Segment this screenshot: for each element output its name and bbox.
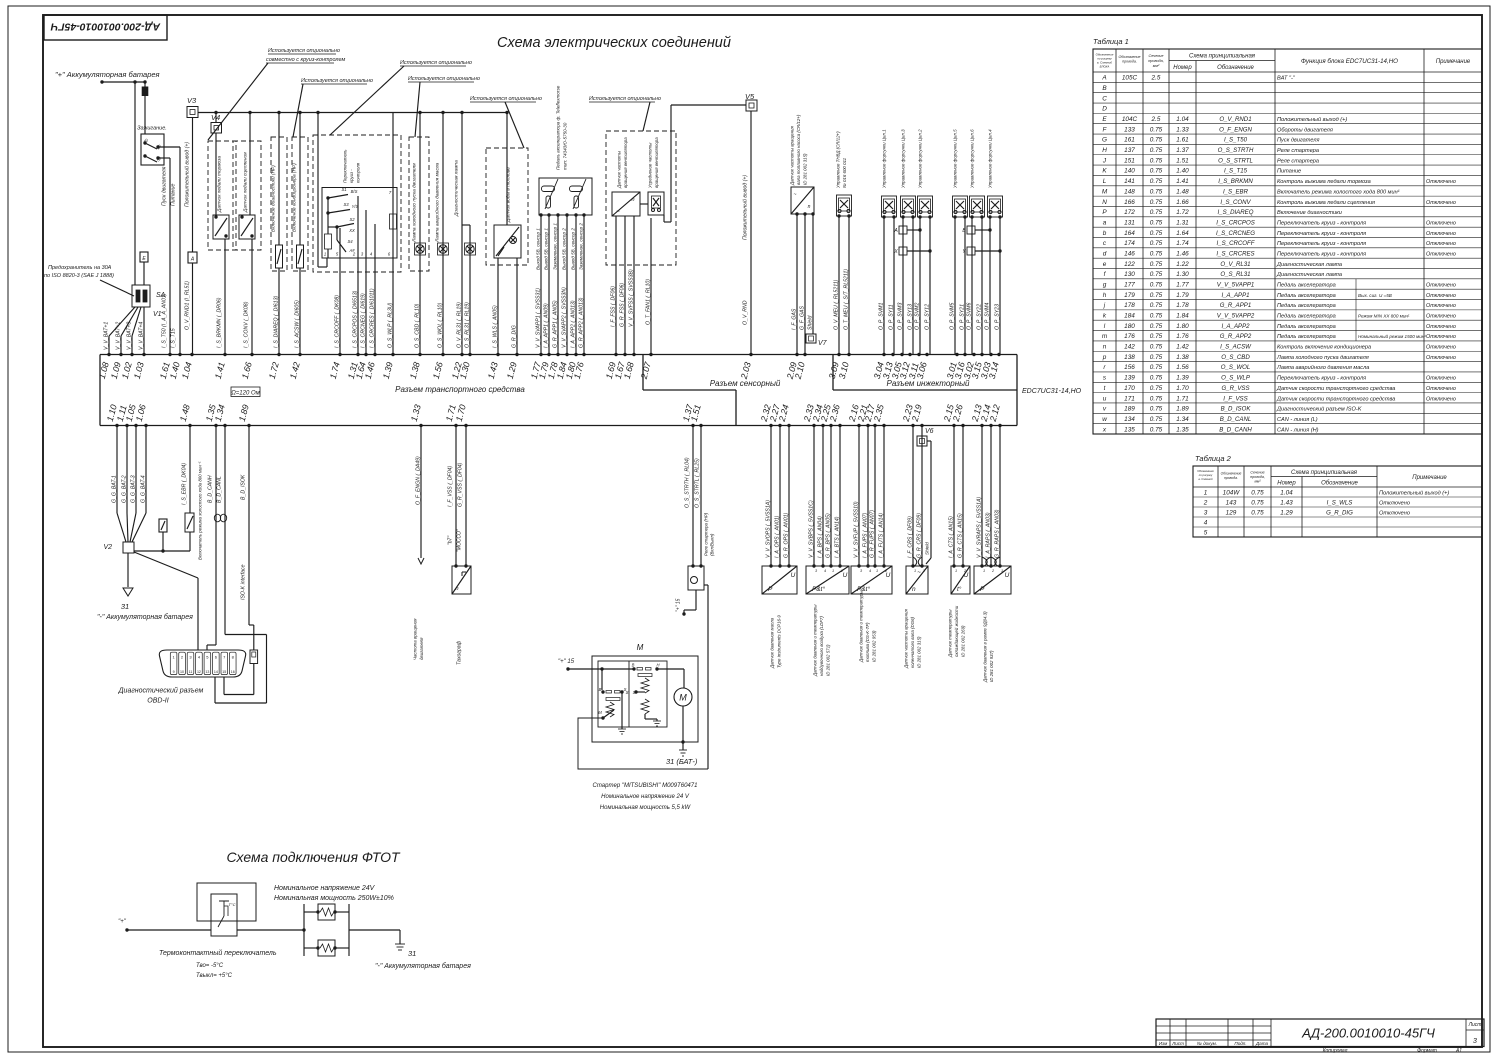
svg-text:0.75: 0.75: [1150, 209, 1163, 216]
svg-text:Управление форсунки Цил.1: Управление форсунки Цил.1: [881, 129, 886, 188]
svg-text:I_A_OPS (_AN01): I_A_OPS (_AN01): [774, 515, 780, 558]
svg-text:коленчатого вала (DG6): коленчатого вала (DG6): [910, 616, 915, 668]
svg-text:178: 178: [1124, 302, 1135, 309]
svg-text:Датчик частоты вращения: Датчик частоты вращения: [903, 609, 908, 669]
svg-text:0.75: 0.75: [1150, 168, 1163, 175]
svg-text:I_S_CRCNEG (_DI619): I_S_CRCNEG (_DI619): [360, 293, 366, 348]
svg-text:Датчик давления и температуры: Датчик давления и температуры: [858, 590, 863, 663]
svg-text:Включение кондиционера (НР): Включение кондиционера (НР): [291, 163, 297, 232]
svg-text:Вых. сиг. U =5В: Вых. сиг. U =5В: [1358, 293, 1392, 298]
svg-text:m: m: [1102, 333, 1108, 340]
svg-text:L: L: [1103, 178, 1107, 185]
svg-text:143: 143: [1226, 500, 1237, 507]
svg-text:2.5: 2.5: [1151, 116, 1161, 123]
svg-text:Управление форсунки Цил.5: Управление форсунки Цил.5: [952, 129, 957, 188]
svg-text:O_S_RL31 (_RL19): O_S_RL31 (_RL19): [464, 302, 470, 348]
svg-text:ISO-K interface: ISO-K interface: [240, 564, 246, 600]
svg-text:141: 141: [1124, 178, 1135, 185]
svg-text:0.75: 0.75: [1150, 230, 1163, 237]
svg-text:1.29: 1.29: [1280, 510, 1293, 517]
svg-text:V_V_SVFUP (_5VSS10): V_V_SVFUP (_5VSS10): [853, 501, 859, 558]
svg-text:Схема принципиальная: Схема принципиальная: [1291, 470, 1358, 476]
svg-text:N: N: [1102, 199, 1107, 206]
svg-text:Номер: Номер: [1277, 481, 1296, 487]
svg-text:O_T_MEU (_S/T_RL5211): O_T_MEU (_S/T_RL5211): [843, 269, 849, 330]
svg-text:1.74: 1.74: [1176, 240, 1189, 247]
svg-text:V_V_SVAPP1 (_SVSS31): V_V_SVAPP1 (_SVSS31): [535, 288, 541, 348]
svg-text:O_S_WLP (_RL3U): O_S_WLP (_RL3U): [387, 302, 393, 348]
svg-text:O_P_SY12: O_P_SY12: [924, 304, 930, 330]
svg-text:0.75: 0.75: [1150, 199, 1163, 206]
svg-text:d: d: [1103, 250, 1107, 257]
svg-text:провода.: провода.: [1224, 476, 1238, 480]
svg-text:Датчик педали тормоза: Датчик педали тормоза: [216, 156, 222, 213]
svg-text:I_S_CRCRES: I_S_CRCRES: [1216, 250, 1254, 257]
svg-text:146: 146: [1124, 250, 1135, 257]
svg-text:1.70: 1.70: [1176, 385, 1189, 392]
svg-text:161: 161: [1124, 137, 1135, 144]
svg-text:10: 10: [180, 670, 184, 674]
svg-text:совместно с круиз-контролем: совместно с круиз-контролем: [266, 57, 346, 63]
svg-text:1.78: 1.78: [1176, 302, 1189, 309]
svg-text:O_P_SVM2: O_P_SVM2: [914, 302, 920, 330]
svg-text:h: h: [1103, 292, 1107, 299]
svg-text:~: ~: [794, 192, 797, 198]
svg-text:Отключено: Отключено: [1426, 220, 1456, 226]
svg-text:1.72: 1.72: [1176, 209, 1189, 216]
svg-text:G_R_VSS (_DF04): G_R_VSS (_DF04): [457, 462, 463, 507]
svg-text:I_A_FUPS (_AN07): I_A_FUPS (_AN07): [862, 512, 868, 558]
svg-text:ID 281 002 269): ID 281 002 269): [960, 625, 965, 657]
svg-text:Отключено: Отключено: [1426, 231, 1456, 237]
svg-text:Зажигание.: Зажигание.: [137, 126, 167, 132]
svg-text:Схема электрических соединений: Схема электрических соединений: [497, 35, 731, 51]
svg-text:1.76: 1.76: [1176, 333, 1189, 340]
svg-text:Отключено: Отключено: [1426, 283, 1456, 289]
svg-text:Отключено: Отключено: [1426, 251, 1456, 257]
svg-text:O_S_STRTL: O_S_STRTL: [1218, 157, 1253, 164]
svg-text:O_S_STRTH (_RL04): O_S_STRTH (_RL04): [684, 457, 690, 508]
svg-text:A: A: [893, 228, 898, 234]
svg-text:135: 135: [1124, 426, 1135, 433]
svg-text:Диагностическая лампа: Диагностическая лампа: [1276, 272, 1342, 278]
svg-text:вала топливного насоса (CR/12+: вала топливного насоса (CR/12+): [796, 114, 801, 185]
svg-text:V7: V7: [818, 340, 828, 347]
svg-text:S3: S3: [343, 202, 349, 207]
svg-text:0.75: 0.75: [1150, 375, 1163, 382]
svg-text:3: 3: [1204, 510, 1208, 517]
svg-text:Примечание: Примечание: [1436, 59, 1471, 65]
svg-text:G_R_BPS (_AN05): G_R_BPS (_AN05): [825, 513, 831, 558]
svg-text:Контроль выжима педали сцеплен: Контроль выжима педали сцепления: [1277, 200, 1375, 206]
svg-text:I_F_FSS (_DF06): I_F_FSS (_DF06): [610, 286, 616, 327]
svg-text:O_P_SVM1: O_P_SVM1: [878, 302, 884, 330]
svg-text:Используется опционально: Используется опционально: [268, 48, 340, 54]
svg-text:С: С: [1102, 95, 1107, 102]
svg-text:Т°С: Т°С: [229, 902, 236, 907]
svg-text:G_R_FSS (_DF06): G_R_FSS (_DF06): [619, 283, 625, 327]
svg-text:Разъем транспортного средства: Разъем транспортного средства: [395, 385, 525, 394]
svg-text:0.75: 0.75: [1251, 500, 1264, 507]
svg-text:0.75: 0.75: [1251, 510, 1264, 517]
svg-text:V2: V2: [103, 544, 112, 551]
svg-text:1.56: 1.56: [1176, 364, 1189, 371]
svg-text:V6: V6: [925, 428, 934, 435]
svg-text:0.75: 0.75: [1150, 313, 1163, 320]
svg-text:1: 1: [914, 569, 916, 573]
svg-text:топлива (DS-K-TF): топлива (DS-K-TF): [865, 622, 870, 662]
svg-text:1.39: 1.39: [1176, 375, 1189, 382]
svg-text:V_V_5VAPP2: V_V_5VAPP2: [1217, 313, 1255, 320]
svg-text:2.5: 2.5: [1151, 75, 1161, 82]
svg-text:G_R_DIG: G_R_DIG: [1326, 510, 1353, 517]
svg-text:Shield: Shield: [924, 542, 929, 555]
svg-text:p: p: [1102, 354, 1107, 361]
svg-text:1.40: 1.40: [1176, 168, 1189, 175]
svg-text:1.66: 1.66: [1176, 199, 1189, 206]
svg-text:Номинальное напряжение 24 V: Номинальное напряжение 24 V: [601, 794, 690, 800]
svg-text:V_V_SVBPS (_5VSS1C): V_V_SVBPS (_5VSS1C): [808, 500, 814, 558]
svg-text:131: 131: [1124, 219, 1135, 226]
svg-text:Сечение: Сечение: [1148, 54, 1163, 58]
svg-text:174: 174: [1124, 240, 1135, 247]
svg-text:1.30: 1.30: [1176, 271, 1189, 278]
svg-text:O_S_WOL (_RL10): O_S_WOL (_RL10): [437, 303, 443, 348]
svg-text:В: В: [1102, 85, 1107, 92]
svg-text:провода.: провода.: [1122, 60, 1137, 64]
svg-text:171: 171: [1124, 395, 1135, 402]
svg-text:1.34: 1.34: [1176, 416, 1189, 423]
svg-text:BAT "-": BAT "-": [1277, 76, 1296, 82]
svg-text:I_S_T15: I_S_T15: [1224, 168, 1248, 175]
svg-text:"+" 15: "+" 15: [558, 659, 575, 665]
svg-text:Термоконтактный переключатель: Термоконтактный переключатель: [159, 949, 277, 957]
svg-text:O_V_RL31: O_V_RL31: [1220, 261, 1250, 268]
svg-text:1.42: 1.42: [1176, 344, 1189, 351]
svg-text:(Вкл/Выкл): (Вкл/Выкл): [709, 533, 714, 556]
svg-text:Обороты двигателя: Обороты двигателя: [1277, 127, 1333, 133]
svg-text:Функция блока EDC7UC31-14,НО: Функция блока EDC7UC31-14,НО: [1301, 58, 1398, 65]
svg-text:Датчик скорости транспортного: Датчик скорости транспортного средства: [1276, 396, 1395, 402]
svg-text:Отключено: Отключено: [1426, 345, 1456, 351]
svg-text:Диагностическая лампа: Диагностическая лампа: [453, 160, 459, 217]
svg-text:I_S_DIAREQ (_DI613): I_S_DIAREQ (_DI613): [273, 296, 279, 348]
svg-text:"b7": "b7": [447, 536, 453, 545]
svg-text:Лист: Лист: [1468, 1022, 1482, 1028]
svg-text:G_R_APP1 (_AN05): G_R_APP1 (_AN05): [552, 300, 558, 348]
svg-text:31 (БАТ-): 31 (БАТ-): [666, 757, 698, 766]
svg-text:Отключено: Отключено: [1426, 355, 1456, 361]
svg-text:Стартер "MITSUBISHI" М009Т60: Стартер "MITSUBISHI" М009Т60471: [593, 783, 698, 789]
svg-text:1.51: 1.51: [1176, 157, 1189, 164]
svg-text:G_R_VSS: G_R_VSS: [1221, 385, 1249, 392]
svg-text:Переключатель круиз - контроля: Переключатель круиз - контроля: [1277, 220, 1366, 226]
svg-text:n: n: [631, 197, 634, 203]
svg-text:g: g: [1103, 282, 1107, 289]
svg-text:139: 139: [1124, 375, 1135, 382]
svg-text:Пуск двигателя: Пуск двигателя: [161, 166, 167, 206]
svg-text:Лампа аварийного давления масл: Лампа аварийного давления масла: [1276, 364, 1369, 371]
svg-text:контроля: контроля: [355, 162, 360, 183]
svg-text:G: G: [1102, 137, 1107, 144]
svg-text:O_P_SY22: O_P_SY22: [976, 304, 982, 330]
svg-text:0.75: 0.75: [1150, 354, 1163, 361]
svg-text:Контроль включения кондиционер: Контроль включения кондиционера: [1277, 345, 1371, 351]
svg-text:O_V_RL31 (_RL19): O_V_RL31 (_RL19): [456, 302, 462, 348]
svg-text:SA: SA: [156, 292, 166, 299]
svg-text:Лампа аварийного давления масл: Лампа аварийного давления масла: [433, 162, 440, 243]
svg-text:Номинальное напряжение 24V: Номинальное напряжение 24V: [274, 885, 376, 892]
svg-text:K: K: [1102, 168, 1107, 175]
svg-text:Питание: Питание: [170, 183, 176, 206]
svg-text:104C: 104C: [1122, 116, 1138, 123]
svg-text:I_A_BTS (_AN14): I_A_BTS (_AN14): [834, 516, 840, 558]
svg-text:O_P_SY21: O_P_SY21: [959, 304, 965, 330]
svg-text:Переключатель круиз - контроля: Переключатель круиз - контроля: [1277, 251, 1366, 257]
svg-text:I_S_CRCPOS (_DI6513): I_S_CRCPOS (_DI6513): [352, 290, 358, 348]
svg-text:Копировал: Копировал: [1323, 1048, 1348, 1054]
svg-text:I_S_CRCOFF (_DK08): I_S_CRCOFF (_DK08): [334, 295, 340, 348]
svg-text:179: 179: [1124, 292, 1135, 299]
svg-text:1: 1: [1204, 490, 1208, 497]
svg-text:Дата: Дата: [1255, 1041, 1269, 1046]
svg-text:вращения вентилятора: вращения вентилятора: [654, 137, 659, 188]
svg-text:Педаль акселератора: Педаль акселератора: [1277, 314, 1336, 320]
svg-text:I_S_ACSW: I_S_ACSW: [1220, 344, 1252, 351]
svg-text:133: 133: [1124, 126, 1135, 133]
svg-text:Номинальная мощность 5,5 kW: Номинальная мощность 5,5 kW: [600, 805, 692, 811]
svg-text:Лист: Лист: [1171, 1041, 1184, 1046]
svg-text:O_P_SY11: O_P_SY11: [888, 304, 894, 330]
svg-text:M: M: [1102, 188, 1108, 195]
svg-text:Отключено: Отключено: [1426, 376, 1456, 382]
svg-text:a: a: [1103, 219, 1107, 226]
svg-text:D: D: [1102, 106, 1107, 113]
svg-text:I_S_CRCOFF: I_S_CRCOFF: [1217, 240, 1256, 247]
svg-text:Управление форсунки Цил.6: Управление форсунки Цил.6: [969, 129, 974, 188]
svg-text:156: 156: [1124, 364, 1135, 371]
svg-text:G_R_CRS (_DF09): G_R_CRS (_DF09): [916, 513, 922, 558]
svg-text:EDC7UC31-14,НО: EDC7UC31-14,НО: [1022, 388, 1082, 395]
svg-text:0.75: 0.75: [1150, 292, 1163, 299]
svg-text:V_V_5VAPP1: V_V_5VAPP1: [1217, 282, 1255, 289]
svg-text:0.75: 0.75: [1150, 147, 1163, 154]
svg-text:G_R_OPS (_AN01): G_R_OPS (_AN01): [783, 512, 789, 558]
svg-text:Пуск двигателя: Пуск двигателя: [1277, 138, 1320, 144]
svg-text:Отключено: Отключено: [1426, 179, 1456, 185]
svg-text:4: 4: [1204, 520, 1208, 527]
svg-text:G_R_CTS (_AN15): G_R_CTS (_AN15): [957, 513, 963, 558]
svg-text:Отключено: Отключено: [1426, 324, 1456, 330]
svg-text:Частота вращения: Частота вращения: [412, 618, 417, 660]
svg-text:1.46: 1.46: [1176, 250, 1189, 257]
svg-text:B_D_ISOK: B_D_ISOK: [1221, 406, 1252, 413]
svg-text:G_G_BAT-2: G_G_BAT-2: [121, 475, 127, 503]
svg-text:ID 281 002 571): ID 281 002 571): [825, 644, 830, 676]
svg-text:"+" 15: "+" 15: [675, 598, 681, 612]
svg-text:Заземление, сенсор 1: Заземление, сенсор 1: [552, 223, 557, 270]
svg-text:V_V_SVAPP2 (_SVSS3N): V_V_SVAPP2 (_SVSS3N): [561, 287, 567, 348]
svg-text:двигателя: двигателя: [419, 637, 424, 660]
svg-text:1.48: 1.48: [1176, 188, 1189, 195]
svg-text:Датчик воды в топливе: Датчик воды в топливе: [505, 167, 511, 223]
svg-text:O_V_RND: O_V_RND: [742, 300, 748, 325]
svg-text:1: 1: [955, 569, 957, 573]
svg-text:O_S_RL31: O_S_RL31: [1220, 271, 1250, 278]
svg-text:V1: V1: [153, 311, 162, 318]
svg-text:I_S_ACSW (_DI605): I_S_ACSW (_DI605): [294, 300, 300, 348]
svg-text:134: 134: [1124, 416, 1135, 423]
svg-text:Вывод 5В, сенсор 2: Вывод 5В, сенсор 2: [570, 228, 575, 270]
svg-text:0.75: 0.75: [1251, 490, 1264, 497]
svg-text:мм²: мм²: [1254, 480, 1261, 484]
svg-text:1: 1: [832, 569, 834, 573]
svg-text:Питание: Питание: [1277, 169, 1301, 175]
svg-text:Таблица 1: Таблица 1: [1093, 37, 1129, 46]
svg-text:I_S_T50 (I_A_A_AN01): I_S_T50 (I_A_A_AN01): [161, 293, 167, 348]
svg-text:B_D_ISOK: B_D_ISOK: [240, 474, 246, 500]
svg-text:I_S_CONV: I_S_CONV: [1220, 199, 1251, 206]
svg-text:9: 9: [173, 670, 175, 674]
svg-text:1: 1: [1001, 569, 1003, 573]
svg-text:1.80: 1.80: [1176, 323, 1189, 330]
svg-text:Выход 5В, сенсор 2: Выход 5В, сенсор 2: [561, 228, 566, 270]
svg-text:0.75: 0.75: [1150, 406, 1163, 413]
svg-text:Положительный выход (+): Положительный выход (+): [1379, 490, 1449, 497]
svg-text:O_V_RND1: O_V_RND1: [1219, 116, 1251, 123]
svg-text:Используется опционально: Используется опционально: [470, 96, 542, 102]
svg-text:0.75: 0.75: [1150, 240, 1163, 247]
svg-text:31: 31: [121, 602, 129, 611]
svg-text:I_A_CTS (_AN15): I_A_CTS (_AN15): [948, 516, 954, 558]
svg-text:0.75: 0.75: [1150, 261, 1163, 268]
svg-text:n: n: [912, 586, 916, 593]
svg-text:I_S_T15: I_S_T15: [170, 328, 176, 348]
svg-text:М: М: [598, 710, 602, 715]
svg-text:0.75: 0.75: [1150, 126, 1163, 133]
svg-text:В: В: [632, 663, 635, 668]
svg-text:O_S_CBD: O_S_CBD: [1221, 354, 1250, 361]
svg-text:Отключено: Отключено: [1426, 386, 1456, 392]
svg-text:Положительный вывод (+): Положительный вывод (+): [741, 175, 748, 240]
svg-text:Реле стартера: Реле стартера: [1277, 148, 1319, 154]
svg-text:0.75: 0.75: [1150, 219, 1163, 226]
svg-text:O_S_CBD (_RL10): O_S_CBD (_RL10): [414, 303, 420, 348]
svg-text:E: E: [1102, 116, 1107, 123]
svg-text:Используется опционально: Используется опционально: [301, 78, 373, 84]
svg-text:Разъем сенсорный: Разъем сенсорный: [710, 379, 781, 388]
svg-text:Реле стартера (НР): Реле стартера (НР): [703, 512, 708, 556]
svg-text:0.75: 0.75: [1150, 188, 1163, 195]
svg-text:I_F_CRS (_DF09): I_F_CRS (_DF09): [907, 516, 913, 558]
svg-text:U: U: [843, 572, 848, 579]
svg-text:A: A: [190, 257, 195, 263]
svg-text:176: 176: [1124, 333, 1135, 340]
svg-text:I_S_EBR (_DK04): I_S_EBR (_DK04): [181, 463, 187, 505]
svg-text:I_S_DIAREQ: I_S_DIAREQ: [1218, 209, 1254, 216]
svg-text:А: А: [1101, 75, 1106, 82]
svg-text:V_V_BAT+1: V_V_BAT+1: [103, 322, 109, 350]
svg-text:138: 138: [1124, 354, 1135, 361]
svg-text:0.75: 0.75: [1150, 271, 1163, 278]
svg-text:5: 5: [1204, 530, 1208, 537]
svg-text:Включение диагностики (НР): Включение диагностики (НР): [270, 165, 276, 232]
svg-text:Педаль акселератора ф. Telefle: Педаль акселератора ф. Teleflexmorse: [555, 85, 560, 170]
svg-text:G_R_APP2: G_R_APP2: [1220, 333, 1252, 340]
svg-text:Отключено: Отключено: [1426, 293, 1456, 299]
svg-text:X: X: [893, 249, 898, 255]
svg-text:Педаль акселератора: Педаль акселератора: [1277, 293, 1336, 299]
svg-text:Отключено: Отключено: [1379, 501, 1410, 507]
svg-text:Используется опционально: Используется опционально: [400, 60, 472, 66]
svg-text:O_V_RND1 (I_RL51): O_V_RND1 (I_RL51): [184, 281, 190, 330]
svg-text:U: U: [1005, 572, 1010, 579]
svg-text:0.75: 0.75: [1150, 157, 1163, 164]
svg-text:151: 151: [1124, 157, 1135, 164]
svg-text:G_G_BAT-3: G_G_BAT-3: [130, 475, 136, 503]
svg-text:АД-200.0010010-45ГЧ: АД-200.0010010-45ГЧ: [1301, 1026, 1435, 1041]
svg-text:Схема принципиальная: Схема принципиальная: [1189, 54, 1256, 60]
svg-text:№ докум.: № докум.: [1197, 1041, 1217, 1046]
svg-text:Педаль акселератора: Педаль акселератора: [1277, 324, 1336, 330]
svg-text:по ISO 8820-3 (SAE J 1888): по ISO 8820-3 (SAE J 1888): [44, 273, 114, 279]
svg-text:Используется опционально: Используется опционально: [589, 96, 661, 102]
svg-text:Формат: Формат: [1417, 1048, 1437, 1054]
svg-text:0.75: 0.75: [1150, 323, 1163, 330]
svg-text:B_D_CANL: B_D_CANL: [1220, 416, 1252, 423]
svg-text:Режим MIN XX 800 мин¹: Режим MIN XX 800 мин¹: [1358, 314, 1410, 319]
svg-text:11: 11: [189, 670, 193, 674]
svg-text:1.61: 1.61: [1176, 137, 1189, 144]
svg-text:ID 281 002 937): ID 281 002 937): [989, 650, 994, 682]
svg-text:130: 130: [1124, 271, 1135, 278]
svg-text:0.75: 0.75: [1150, 395, 1163, 402]
svg-text:охлаждающей жидкости: охлаждающей жидкости: [954, 605, 959, 657]
svg-text:142: 142: [1124, 344, 1135, 351]
svg-text:Shield: Shield: [807, 314, 813, 330]
svg-text:U: U: [791, 572, 796, 579]
svg-text:U: U: [886, 572, 891, 579]
svg-text:Диагностический разъем ISO-K: Диагностический разъем ISO-K: [1276, 406, 1362, 413]
svg-text:O_S_STRTH: O_S_STRTH: [1218, 147, 1254, 154]
svg-text:13: 13: [205, 670, 209, 674]
svg-text:0.75: 0.75: [1150, 137, 1163, 144]
svg-text:15: 15: [222, 670, 226, 674]
svg-text:Обозначение: Обозначение: [1118, 55, 1140, 59]
svg-text:I_A_APP1: I_A_APP1: [1221, 292, 1249, 299]
svg-text:ID 281 002 315): ID 281 002 315): [916, 636, 921, 668]
svg-text:V_V_BAT+4: V_V_BAT+4: [138, 322, 144, 350]
svg-text:189: 189: [1124, 406, 1135, 413]
svg-text:Сечение: Сечение: [1250, 471, 1264, 475]
svg-text:Y/S: Y/S: [352, 204, 359, 209]
svg-text:Предохранитель на 30А: Предохранитель на 30А: [48, 265, 112, 271]
svg-text:Переключатель круиз - контроля: Переключатель круиз - контроля: [1277, 376, 1366, 382]
svg-text:129: 129: [1226, 510, 1237, 517]
svg-text:177: 177: [1124, 282, 1135, 289]
svg-text:Включение диагностики: Включение диагностики: [1277, 210, 1342, 216]
svg-text:G_G_BAT-4: G_G_BAT-4: [140, 475, 146, 503]
svg-text:I_A_APP1 (_AN09): I_A_APP1 (_AN09): [543, 303, 549, 348]
svg-text:наддувочного воздуха (LDF7): наддувочного воздуха (LDF7): [819, 616, 824, 676]
svg-text:Type Instruments DCP16-9: Type Instruments DCP16-9: [776, 615, 781, 668]
svg-text:e: e: [1103, 261, 1107, 268]
svg-text:0.75: 0.75: [1150, 178, 1163, 185]
svg-text:4: 4: [869, 569, 871, 573]
svg-text:P: P: [1102, 209, 1107, 216]
svg-text:G_R_FUPS (_AN07): G_R_FUPS (_AN07): [869, 510, 875, 558]
svg-text:Датчик скорости транспортного: Датчик скорости транспортного средства: [1276, 386, 1395, 392]
